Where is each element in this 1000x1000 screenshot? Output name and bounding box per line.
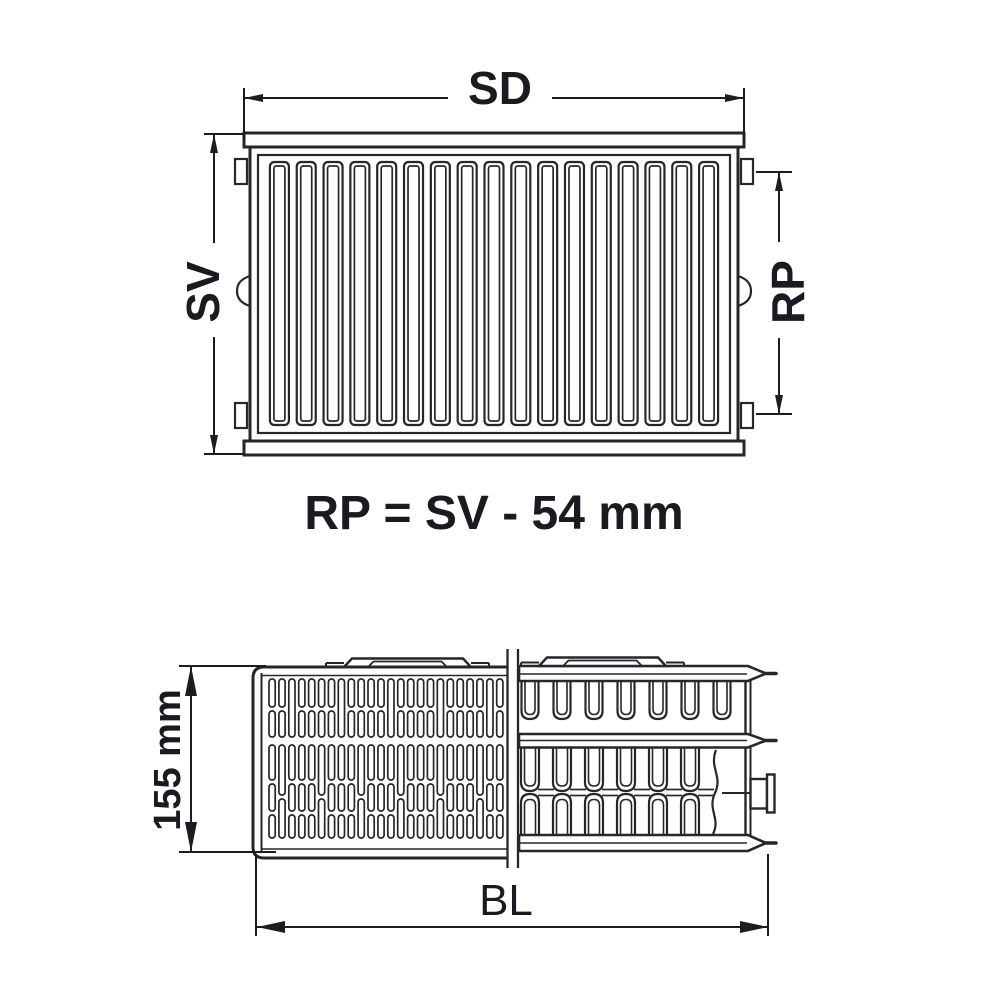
sv-arrow-bottom	[210, 435, 218, 454]
sd-arrow-left	[244, 94, 263, 102]
fin-row2-lower-inner	[525, 800, 536, 836]
plan-right-section	[519, 658, 776, 852]
lifting-lug-right	[539, 658, 666, 667]
fin-row2-lower-inner	[685, 800, 696, 836]
fin-row1	[618, 682, 635, 719]
fin-row2-lower-inner	[557, 800, 568, 836]
connection-tab-right-bottom	[741, 403, 753, 428]
bl-label: BL	[479, 876, 533, 925]
technical-drawing-canvas: SD SV RP RP = SV - 54 mm	[0, 0, 1000, 1000]
fin-row1	[554, 682, 571, 719]
dimension-bl: BL	[256, 854, 768, 936]
fin-row1-inner	[557, 682, 567, 715]
grille-outline	[253, 667, 507, 858]
sv-label: SV	[177, 261, 229, 323]
radiator-top-strip	[244, 133, 744, 147]
fin-row1	[586, 682, 603, 719]
fin-row2-lower-inner	[589, 800, 600, 836]
sd-arrow-right	[725, 94, 744, 102]
radiator-dimension-drawing: SD SV RP RP = SV - 54 mm	[0, 0, 1000, 1000]
front-view	[235, 133, 753, 455]
bl-arrow-right	[740, 921, 768, 933]
depth-label: 155 mm	[147, 689, 189, 831]
dimension-rp: RP	[756, 172, 814, 414]
bl-arrow-left	[257, 921, 285, 933]
connection-stub-flange	[767, 775, 775, 813]
plan-view	[253, 649, 776, 868]
fin-row2-upper-inner	[525, 748, 536, 786]
formula-text: RP = SV - 54 mm	[304, 487, 683, 540]
bracket-tab-left-bottom	[235, 403, 247, 428]
fin-row1	[650, 682, 667, 719]
fin-row2-upper-inner	[589, 748, 600, 786]
sv-arrow-top	[210, 134, 218, 153]
rp-label: RP	[762, 260, 814, 324]
fin-row1-inner	[717, 682, 727, 715]
fin-row2-lower-inner	[621, 800, 632, 836]
sd-label: SD	[468, 62, 532, 114]
fin-row1-inner	[685, 682, 695, 715]
convector-fins	[521, 682, 731, 835]
rp-arrow-bottom	[775, 395, 783, 414]
fin-row2-upper-inner	[621, 748, 632, 786]
dimension-sd: SD	[244, 62, 744, 141]
fin-row1	[682, 682, 699, 719]
connection-tab-right-top	[741, 159, 753, 184]
side-bump-left	[237, 276, 250, 306]
fin-row2-lower-inner	[653, 800, 664, 836]
rp-arrow-top	[775, 172, 783, 191]
fin-row2-upper-inner	[557, 748, 568, 786]
fin-row1-inner	[653, 682, 663, 715]
section-break-line	[508, 649, 519, 868]
plan-left-grille-section	[253, 659, 507, 859]
fin-row1-inner	[589, 682, 599, 715]
fin-row2-upper-inner	[653, 748, 664, 786]
fin-row2-upper-inner	[685, 748, 696, 786]
fin-row1-inner	[621, 682, 631, 715]
fin-row1	[522, 682, 539, 719]
connection-stub	[751, 779, 768, 809]
fin-row1-inner	[525, 682, 535, 715]
bracket-tab-left-top	[235, 159, 247, 184]
fin-row1	[714, 682, 731, 719]
fin-break-squiggle	[712, 750, 717, 834]
radiator-bottom-strip	[244, 441, 744, 455]
side-bump-right	[738, 276, 751, 306]
